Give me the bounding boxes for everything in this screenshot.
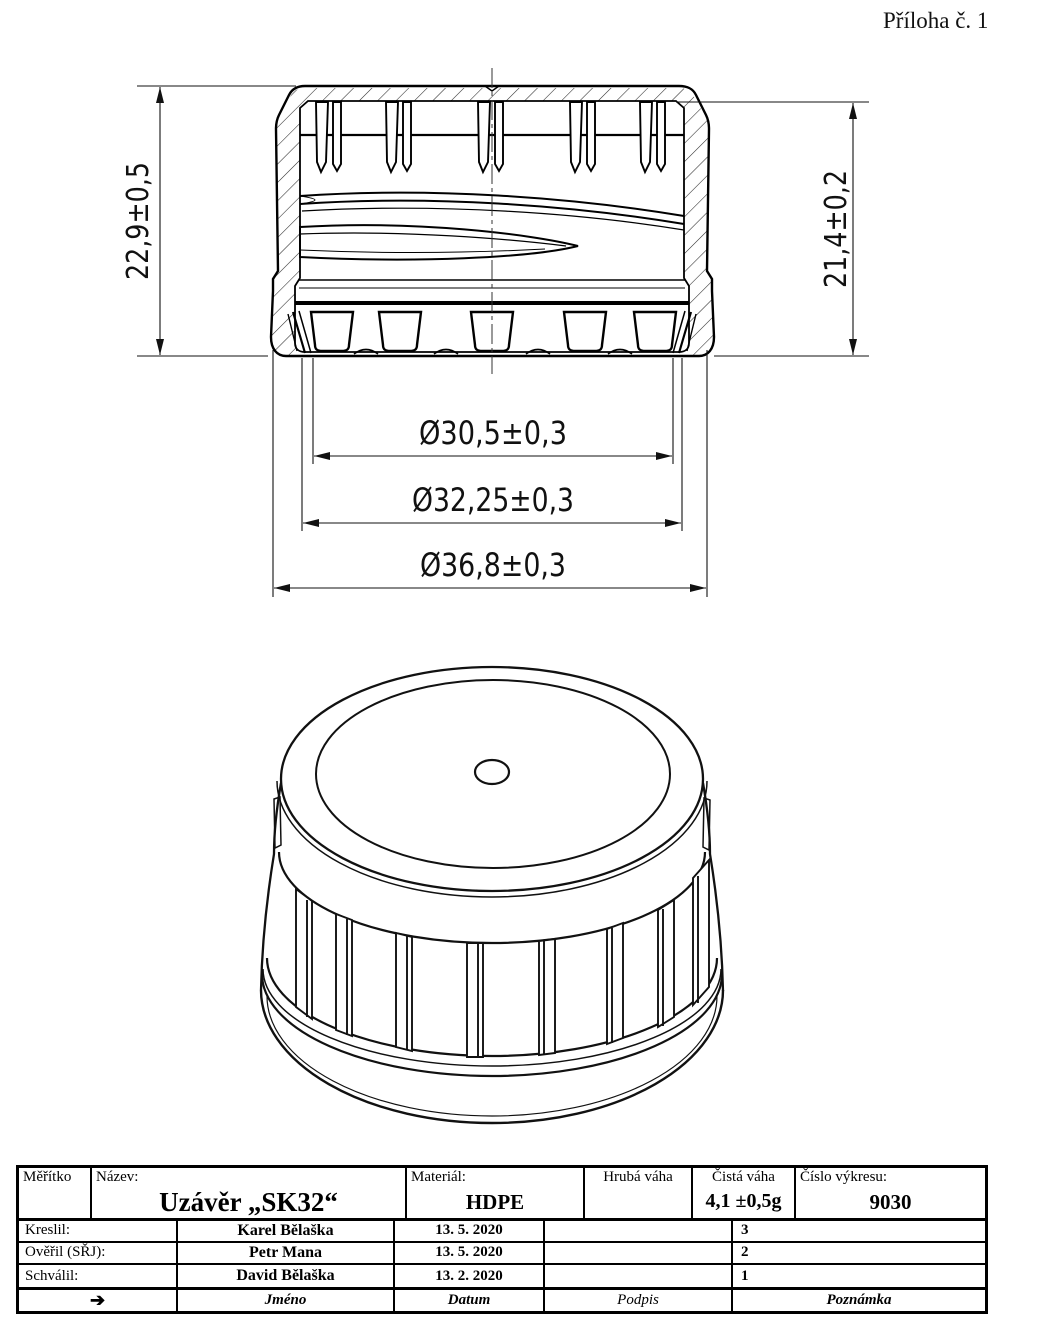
dim-dia-thread-label: Ø32,25±0,3: [412, 481, 574, 519]
approval-row-kreslil: Kreslil: Karel Bělaška 13. 5. 2020 3: [19, 1221, 985, 1243]
scale-cell: Měřítko: [19, 1168, 92, 1218]
title-block-footer: ➔ Jméno Datum Podpis Poznámka: [19, 1287, 985, 1311]
gross-weight-cell: Hrubá váha: [585, 1168, 693, 1218]
approval-row-overil: Ověřil (SŘJ): Petr Mana 13. 5. 2020 2: [19, 1243, 985, 1265]
part-name-cell: Název: Uzávěr „SK32“: [92, 1168, 407, 1218]
dim-dia-inner-group: Ø30,5±0,3: [313, 358, 673, 464]
title-block-header: Měřítko Název: Uzávěr „SK32“ Materiál: H…: [19, 1168, 985, 1221]
role-label: Schválil:: [19, 1265, 178, 1287]
iso-top-rim: [281, 667, 703, 891]
title-block: Měřítko Název: Uzávěr „SK32“ Materiál: H…: [16, 1165, 988, 1314]
footer-note-label: Poznámka: [733, 1290, 985, 1311]
drawing-sheet: { "page": { "annotation": "Příloha č. 1"…: [0, 0, 1043, 1344]
gross-weight-label: Hrubá váha: [585, 1169, 691, 1186]
dim-height-outer-group: 22,9±0,5: [121, 86, 296, 356]
front-section-view: [271, 68, 714, 374]
role-label: Ověřil (SŘJ):: [19, 1243, 178, 1263]
dim-dia-outer-group: Ø36,8±0,3: [273, 350, 707, 597]
footer-signature-label: Podpis: [545, 1290, 733, 1311]
iso-skirt-arc-1: [263, 969, 721, 1066]
arrow-icon: ➔: [90, 1290, 105, 1311]
iso-rim-thickness: [277, 781, 707, 897]
date-value: 13. 5. 2020: [395, 1221, 545, 1241]
note-value: 1: [733, 1265, 985, 1287]
iso-knurl-ribs: [296, 860, 709, 1057]
signature-cell: [545, 1243, 733, 1263]
material-value: HDPE: [407, 1190, 583, 1215]
dim-dia-inner-label: Ø30,5±0,3: [419, 414, 567, 452]
material-cell: Materiál: HDPE: [407, 1168, 585, 1218]
dim-height-outer-label: 22,9±0,5: [121, 162, 156, 280]
role-label: Kreslil:: [19, 1221, 178, 1241]
technical-drawing-canvas: 22,9±0,5 21,4±0,2 Ø30,5±0,3 Ø32,25±0,3: [0, 0, 1043, 1160]
iso-top-face: [316, 680, 670, 868]
net-weight-value: 4,1 ±0,5g: [693, 1190, 794, 1213]
note-value: 3: [733, 1221, 985, 1241]
part-name-value: Uzávěr „SK32“: [92, 1187, 405, 1218]
iso-gate-mark: [475, 760, 509, 784]
inner-ribs: [316, 102, 665, 172]
iso-skirt-arc-2: [262, 974, 722, 1076]
drawing-number-cell: Číslo výkresu: 9030: [796, 1168, 985, 1218]
tamper-ring-windows: [311, 312, 676, 351]
person-name: Karel Bělaška: [178, 1221, 395, 1241]
arrow-cell: ➔: [19, 1290, 178, 1311]
drawing-number-value: 9030: [796, 1190, 985, 1215]
dim-dia-outer-label: Ø36,8±0,3: [420, 546, 566, 584]
footer-date-label: Datum: [395, 1290, 545, 1311]
net-weight-cell: Čistá váha 4,1 ±0,5g: [693, 1168, 796, 1218]
signature-cell: [545, 1265, 733, 1287]
scale-label: Měřítko: [23, 1169, 71, 1186]
iso-knurl-bottom-arc: [267, 958, 717, 1056]
iso-left-silhouette: [261, 783, 281, 990]
date-value: 13. 5. 2020: [395, 1243, 545, 1263]
footer-name-label: Jméno: [178, 1290, 395, 1311]
note-value: 2: [733, 1243, 985, 1263]
dim-height-inner-label: 21,4±0,2: [819, 170, 854, 288]
part-name-label: Název:: [96, 1169, 138, 1186]
person-name: Petr Mana: [178, 1243, 395, 1263]
person-name: David Bělaška: [178, 1265, 395, 1287]
drawing-number-label: Číslo výkresu:: [800, 1169, 887, 1186]
material-label: Materiál:: [411, 1169, 466, 1186]
date-value: 13. 2. 2020: [395, 1265, 545, 1287]
approval-row-schvalil: Schválil: David Bělaška 13. 2. 2020 1: [19, 1265, 985, 1287]
net-weight-label: Čistá váha: [693, 1169, 794, 1186]
isometric-view: [261, 667, 723, 1123]
signature-cell: [545, 1221, 733, 1241]
